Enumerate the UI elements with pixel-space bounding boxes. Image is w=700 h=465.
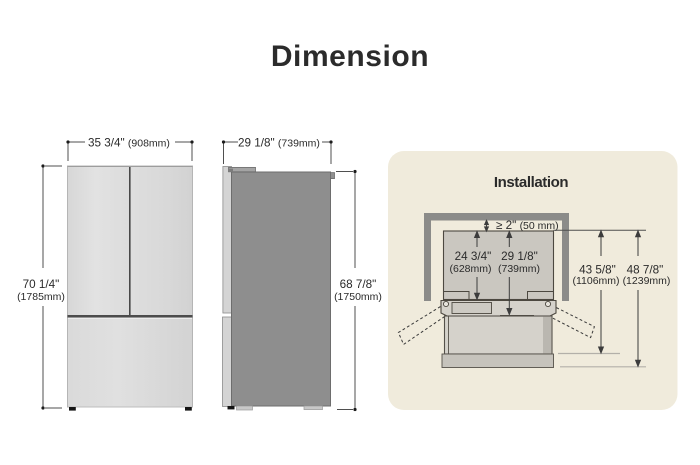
svg-text:35 3/4" (908mm): 35 3/4" (908mm)	[88, 137, 170, 150]
svg-text:24 3/4": 24 3/4"	[455, 250, 492, 263]
svg-text:≥ 2" (50 mm): ≥ 2" (50 mm)	[496, 219, 559, 232]
svg-text:(1785mm): (1785mm)	[17, 291, 65, 303]
svg-text:(1239mm): (1239mm)	[623, 275, 671, 287]
svg-text:(739mm): (739mm)	[498, 263, 540, 275]
svg-text:Dimension: Dimension	[271, 40, 429, 73]
svg-text:68 7/8": 68 7/8"	[340, 278, 377, 291]
svg-text:(628mm): (628mm)	[449, 263, 491, 275]
svg-text:29 1/8": 29 1/8"	[501, 250, 538, 263]
svg-text:Installation: Installation	[494, 174, 569, 191]
svg-text:(1750mm): (1750mm)	[334, 291, 382, 303]
svg-text:70 1/4": 70 1/4"	[23, 278, 60, 291]
svg-text:29 1/8" (739mm): 29 1/8" (739mm)	[238, 137, 320, 150]
svg-text:(1106mm): (1106mm)	[572, 275, 619, 287]
